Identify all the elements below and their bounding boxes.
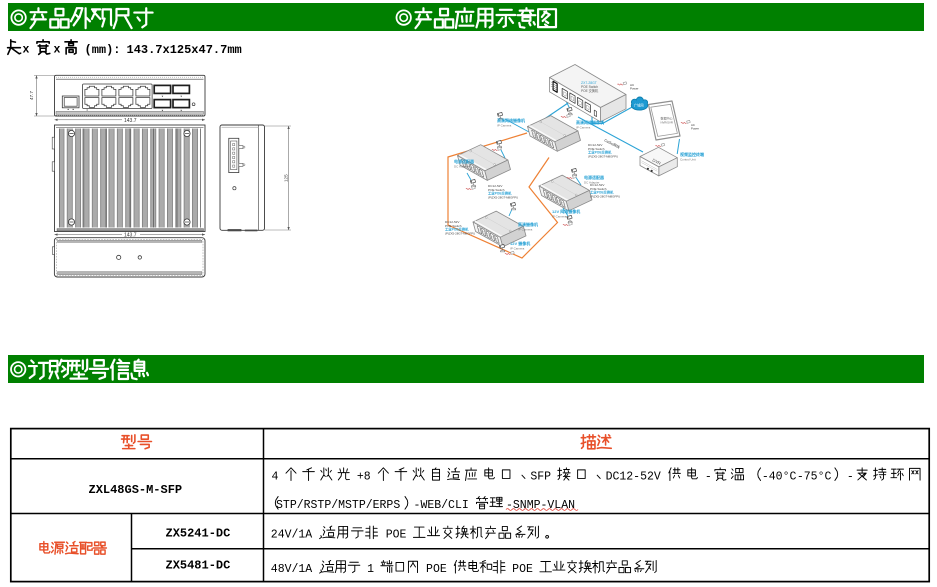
svg-text:IP Camera: IP Camera — [497, 123, 512, 127]
svg-text:-75°C: -75°C — [797, 470, 832, 483]
svg-text:Power: Power — [630, 87, 639, 91]
svg-text:143.7x125x47.7mm: 143.7x125x47.7mm — [127, 43, 242, 57]
svg-text:(mm):: (mm): — [85, 43, 121, 57]
svg-text:(P)ZX5-28GT-M8GFPU: (P)ZX5-28GT-M8GFPU — [588, 154, 618, 158]
svg-text:高清网络摄像机: 高清网络摄像机 — [576, 119, 604, 125]
svg-text:高清网络摄像机: 高清网络摄像机 — [497, 117, 525, 123]
svg-text:IP Camera: IP Camera — [518, 227, 533, 231]
svg-text:12V 摄像机: 12V 摄像机 — [510, 240, 530, 246]
svg-text:Power: Power — [691, 127, 699, 131]
svg-text:-WEB/CLI: -WEB/CLI — [414, 499, 469, 512]
svg-text:高清摄像机: 高清摄像机 — [518, 221, 538, 227]
svg-text:POE 交换机: POE 交换机 — [581, 88, 599, 93]
svg-text:ZXL48GS-M-SFP: ZXL48GS-M-SFP — [89, 483, 183, 497]
svg-text:电源适配器: 电源适配器 — [584, 174, 605, 180]
svg-text:广域网: 广域网 — [634, 102, 644, 107]
svg-text:SFP: SFP — [530, 470, 551, 483]
svg-text:DC Adapter: DC Adapter — [454, 164, 470, 168]
svg-text:视频监控终端: 视频监控终端 — [680, 151, 704, 157]
svg-text:47.7: 47.7 — [29, 91, 34, 100]
svg-text:24V/1A: 24V/1A — [271, 529, 313, 542]
svg-text:-: - — [847, 470, 854, 483]
svg-text:(P)ZX5-28GT-M8GFPU: (P)ZX5-28GT-M8GFPU — [445, 231, 475, 235]
svg-text:IP Camera: IP Camera — [510, 246, 525, 250]
svg-text:-: - — [705, 470, 712, 483]
svg-text:+8: +8 — [357, 470, 371, 483]
svg-text:4: 4 — [272, 470, 279, 483]
svg-text:ZX5241-DC: ZX5241-DC — [166, 526, 231, 540]
svg-text:12V 网络摄像机: 12V 网络摄像机 — [552, 208, 580, 214]
svg-text:(P)ZX5-28GT-M8GFPU: (P)ZX5-28GT-M8GFPU — [488, 195, 518, 199]
svg-text:ZX5481-DC: ZX5481-DC — [166, 559, 231, 573]
svg-text:x: x — [54, 44, 61, 57]
svg-text:POE: POE — [512, 563, 533, 576]
svg-text:(P)ZX5-28GT-M8GFPU: (P)ZX5-28GT-M8GFPU — [590, 194, 620, 198]
svg-text:IP Camera: IP Camera — [552, 214, 567, 218]
svg-text:NVR/SVR: NVR/SVR — [661, 121, 673, 125]
svg-text:48V/1A: 48V/1A — [271, 563, 313, 576]
svg-text:STP/RSTP/MSTP/ERPS: STP/RSTP/MSTP/ERPS — [276, 499, 400, 512]
svg-text:-40°C: -40°C — [762, 470, 797, 483]
svg-text:电源适配器: 电源适配器 — [454, 158, 475, 164]
svg-text:x: x — [23, 44, 30, 57]
svg-text:1: 1 — [367, 563, 374, 576]
svg-text:IP Camera: IP Camera — [576, 125, 591, 129]
svg-text:POE: POE — [426, 563, 447, 576]
svg-text:143.7: 143.7 — [124, 118, 137, 124]
svg-text:DC12-52V: DC12-52V — [606, 470, 661, 483]
svg-text:Control Unit: Control Unit — [680, 157, 696, 161]
svg-text:125: 125 — [284, 174, 289, 182]
svg-text:POE: POE — [386, 529, 407, 542]
